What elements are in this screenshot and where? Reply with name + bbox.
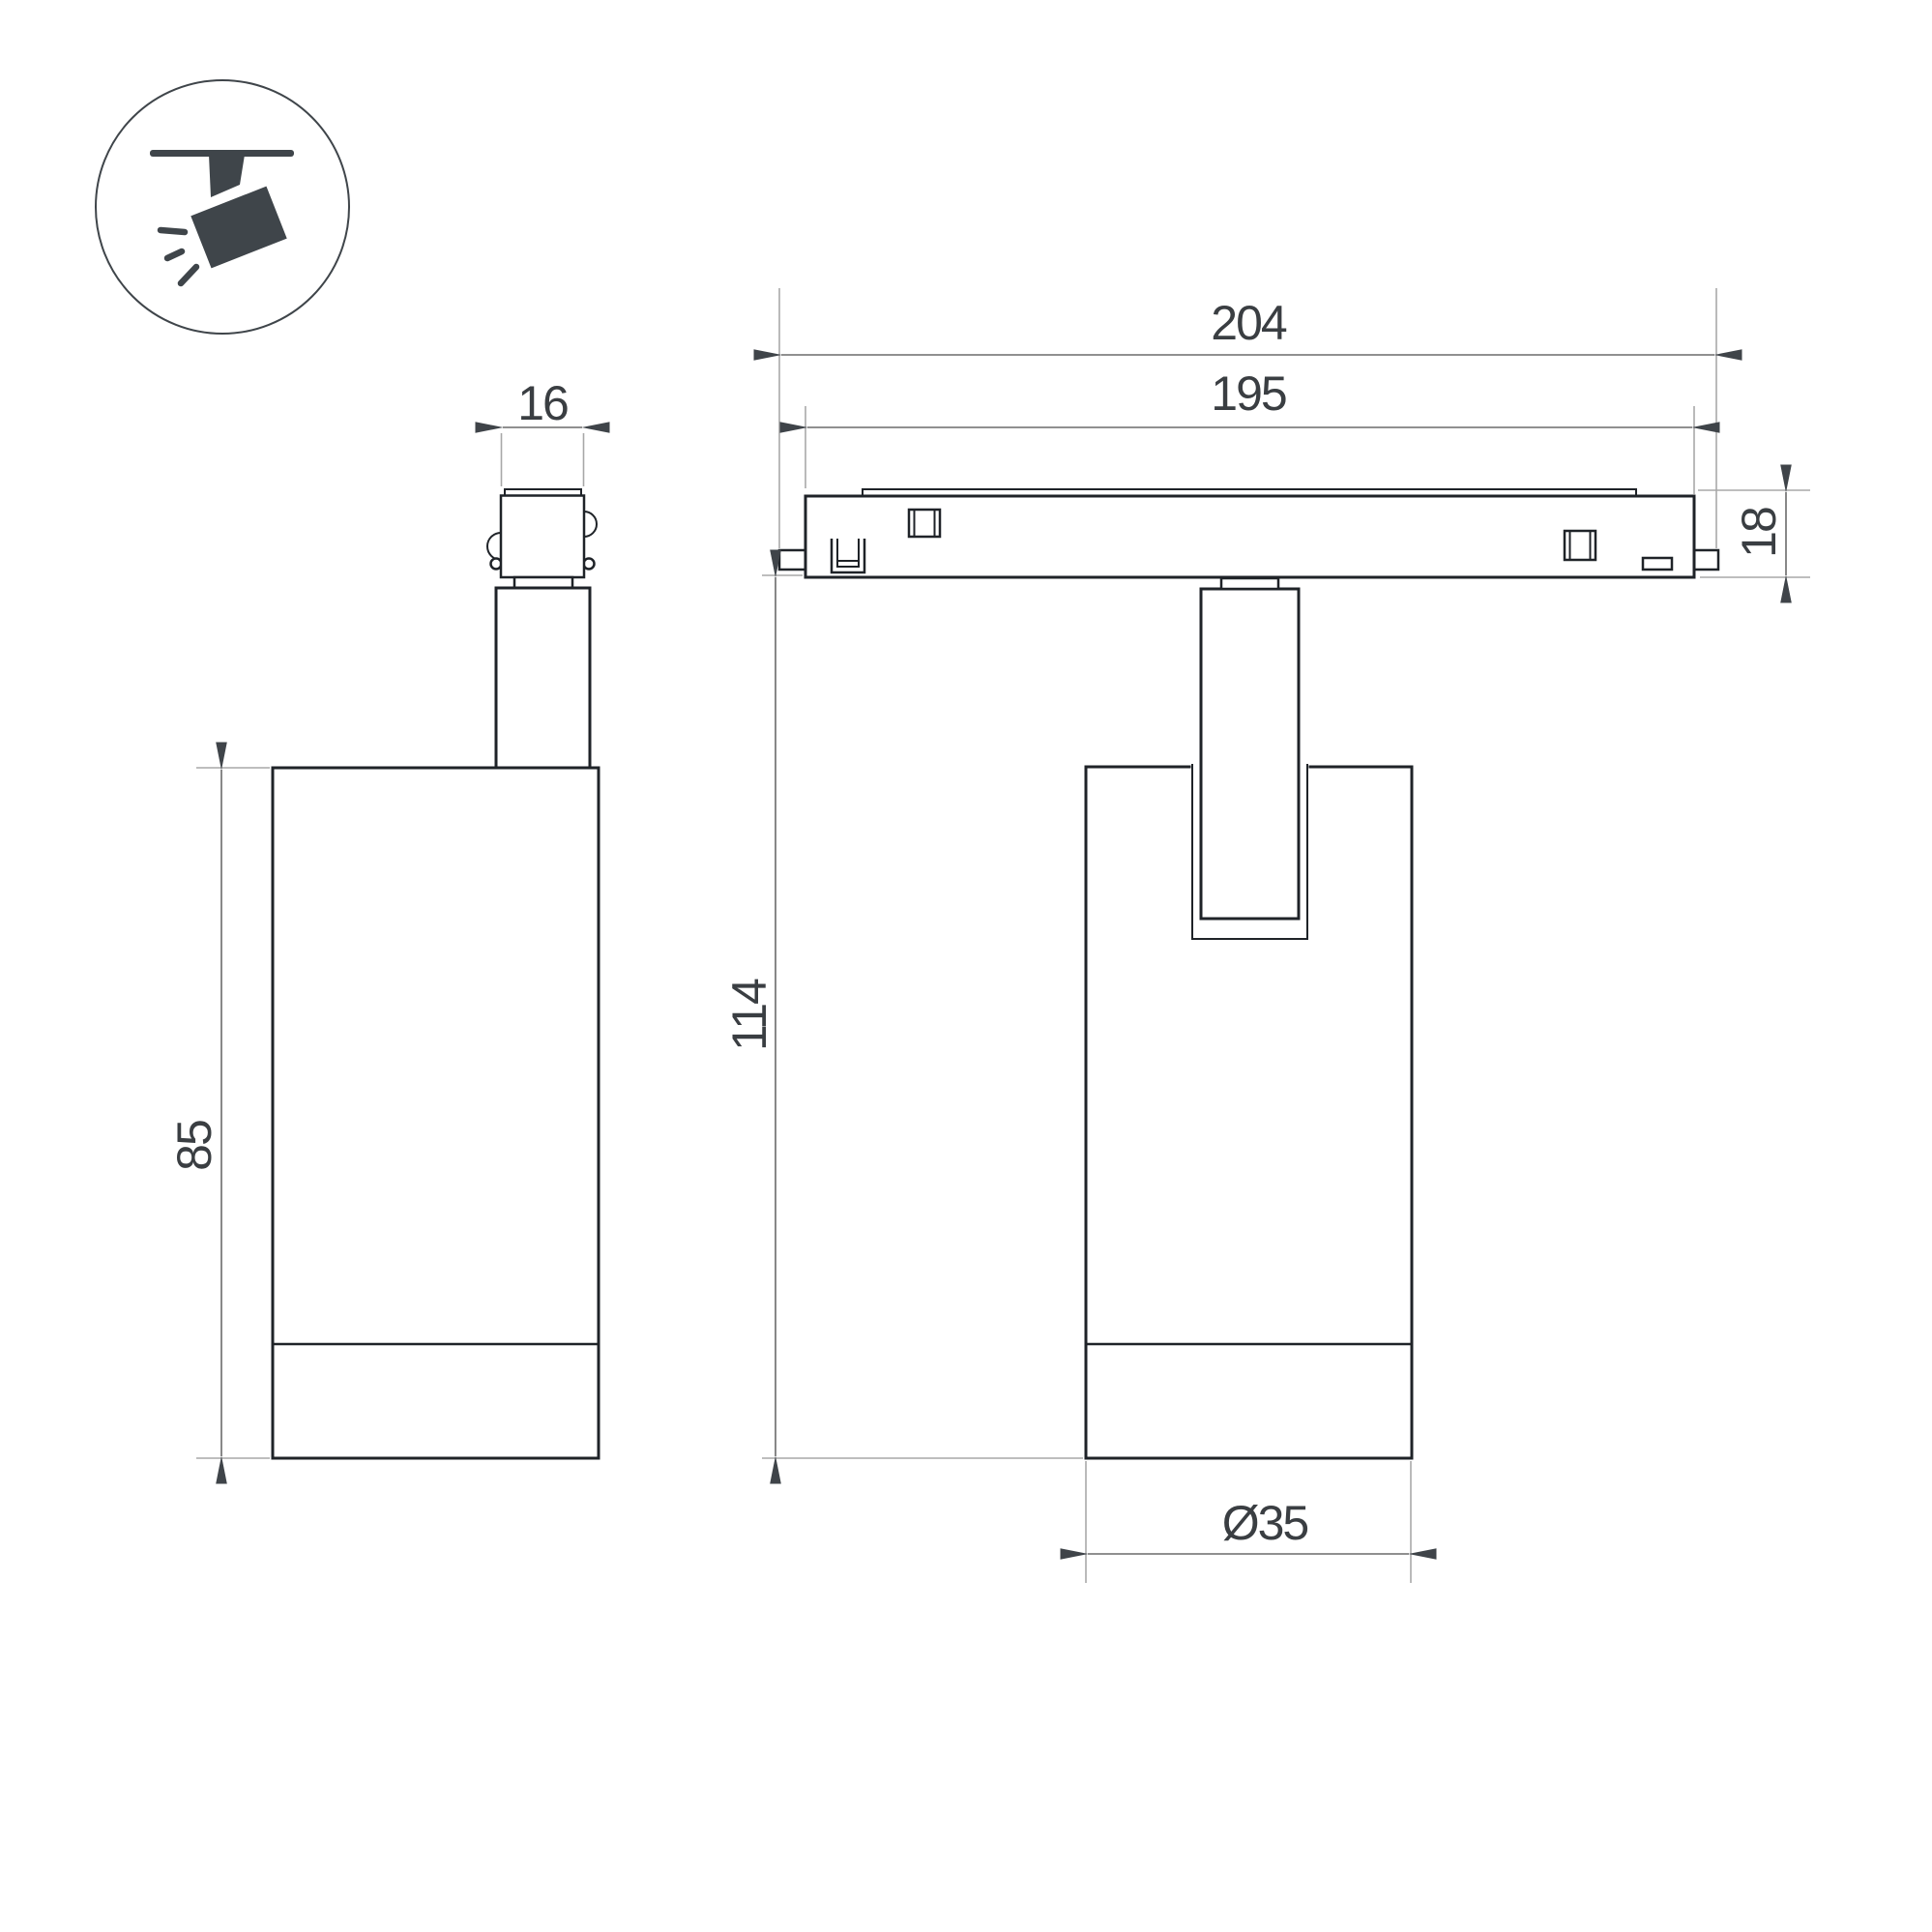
stem-connector-tab xyxy=(1221,578,1278,589)
adapter-left-bump xyxy=(487,533,501,560)
drawing-svg: 16 204 195 18 85 114 Ø35 xyxy=(0,0,1932,1932)
icon-light-ray xyxy=(161,230,185,232)
front-view xyxy=(779,489,1718,1458)
side-view xyxy=(273,489,599,1458)
stem xyxy=(496,588,590,768)
dim-label-35: Ø35 xyxy=(1222,1496,1308,1550)
adapter-neck xyxy=(514,577,572,588)
dim-label-85: 85 xyxy=(167,1121,221,1171)
dim-label-16: 16 xyxy=(517,376,568,430)
dim-label-114: 114 xyxy=(722,979,776,1051)
lamp-body xyxy=(273,768,599,1458)
dim-label-204: 204 xyxy=(1211,296,1287,350)
dim-label-18: 18 xyxy=(1732,508,1786,558)
rail-right-end-tab xyxy=(1694,550,1718,570)
dimension-drawing-canvas: 16 204 195 18 85 114 Ø35 xyxy=(0,0,1932,1932)
track-spotlight-icon xyxy=(96,80,349,334)
track-adapter xyxy=(501,496,584,578)
rail-left-end-tab xyxy=(779,550,805,570)
stem-front xyxy=(1201,589,1299,919)
adapter-right-bump xyxy=(584,512,597,537)
dim-label-195: 195 xyxy=(1211,366,1286,421)
